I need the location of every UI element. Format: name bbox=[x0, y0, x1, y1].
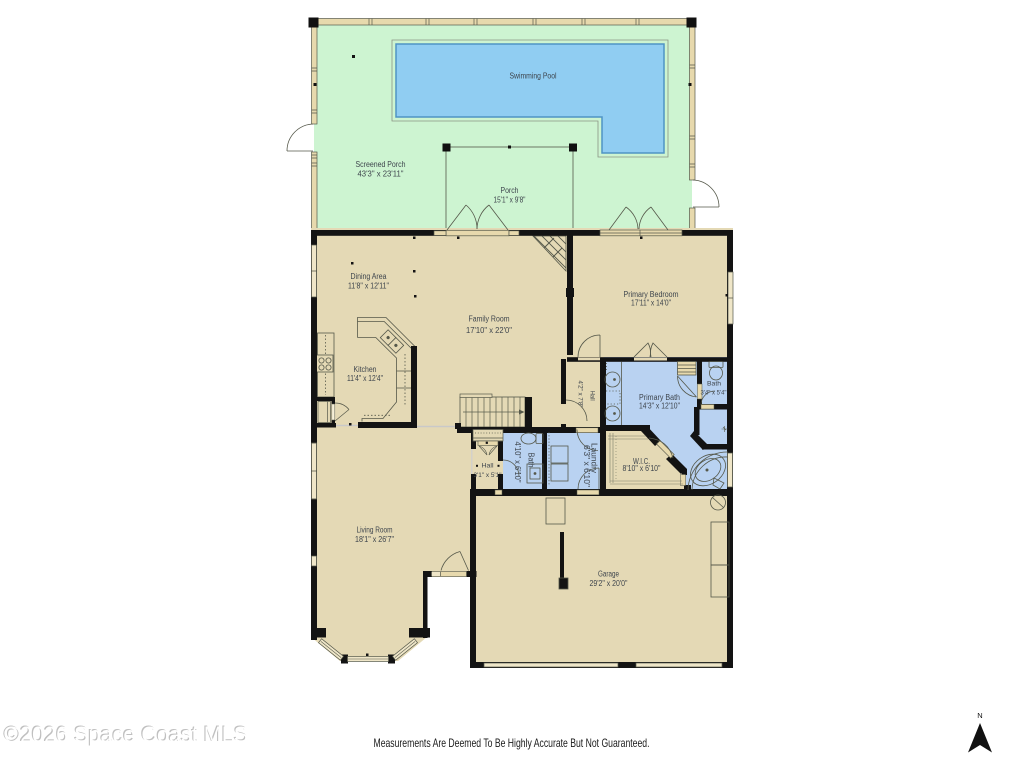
svg-text:11'4" x 12'4": 11'4" x 12'4" bbox=[347, 374, 383, 383]
svg-text:15'1" x 9'8": 15'1" x 9'8" bbox=[494, 196, 526, 205]
svg-text:18'1" x 26'7": 18'1" x 26'7" bbox=[355, 535, 394, 544]
svg-text:©2026 Space Coast MLS: ©2026 Space Coast MLS bbox=[4, 722, 248, 747]
svg-text:Measurements Are Deemed To Be: Measurements Are Deemed To Be Highly Acc… bbox=[374, 736, 650, 750]
svg-text:Hall: Hall bbox=[589, 391, 596, 401]
svg-text:11'8" x 12'11": 11'8" x 12'11" bbox=[348, 282, 389, 291]
svg-text:Dining Area: Dining Area bbox=[351, 272, 388, 281]
svg-text:Bath: Bath bbox=[707, 380, 721, 387]
svg-text:43'3" x 23'11": 43'3" x 23'11" bbox=[358, 170, 404, 179]
svg-text:29'2" x 20'0": 29'2" x 20'0" bbox=[590, 579, 628, 588]
svg-text:6'3" x 6'10": 6'3" x 6'10" bbox=[582, 445, 591, 487]
svg-text:N: N bbox=[977, 711, 982, 720]
svg-text:8'10" x 6'10": 8'10" x 6'10" bbox=[623, 464, 661, 473]
svg-text:Swimming Pool: Swimming Pool bbox=[510, 72, 557, 81]
svg-text:Hall: Hall bbox=[482, 462, 494, 469]
svg-text:Family Room: Family Room bbox=[469, 315, 510, 324]
svg-text:Porch: Porch bbox=[501, 186, 519, 195]
svg-text:Kitchen: Kitchen bbox=[354, 365, 377, 374]
svg-text:Living Room: Living Room bbox=[357, 526, 393, 535]
svg-text:Bath: Bath bbox=[527, 453, 536, 468]
svg-text:3'4" x 5'4": 3'4" x 5'4" bbox=[701, 389, 727, 396]
svg-text:4'10" x 6'10": 4'10" x 6'10" bbox=[513, 442, 522, 483]
svg-text:14'3" x 12'10": 14'3" x 12'10" bbox=[639, 402, 680, 411]
svg-text:Primary Bath: Primary Bath bbox=[639, 393, 680, 402]
svg-text:4'2" x 7'8": 4'2" x 7'8" bbox=[577, 381, 584, 408]
svg-text:17'10" x 22'0": 17'10" x 22'0" bbox=[466, 326, 512, 335]
svg-text:Garage: Garage bbox=[598, 570, 619, 579]
svg-text:Screened Porch: Screened Porch bbox=[356, 160, 406, 169]
svg-text:3'1" x 5'1": 3'1" x 5'1" bbox=[474, 472, 502, 479]
svg-text:17'11" x 14'0": 17'11" x 14'0" bbox=[631, 299, 671, 308]
